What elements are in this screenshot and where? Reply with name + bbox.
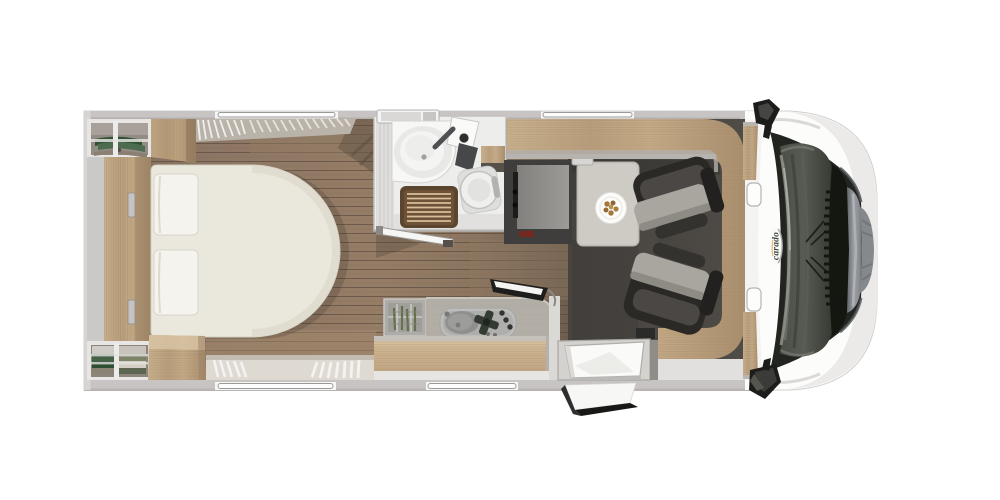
svg-text:carado: carado <box>772 232 782 260</box>
